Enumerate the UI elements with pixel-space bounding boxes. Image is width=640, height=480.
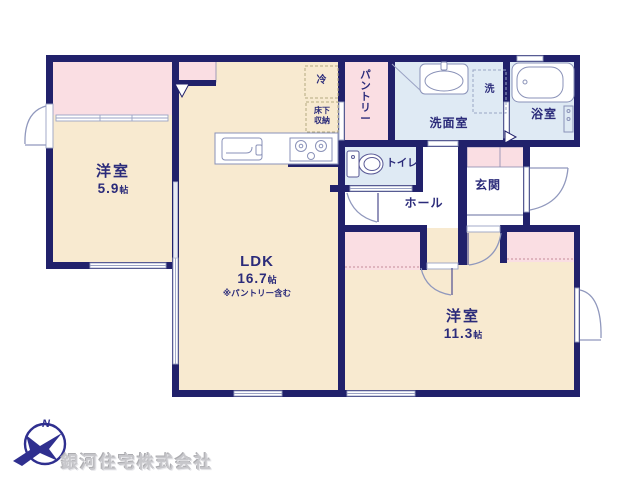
washbasin-faucet-icon [441, 62, 447, 70]
door-entrance-bedroom2-threshold [467, 226, 500, 232]
wall-closet2-top [500, 225, 580, 232]
window-bedroom2-right [575, 288, 579, 342]
underfloor-storage-line1: 床下 [306, 106, 338, 116]
wall-top [46, 55, 580, 62]
company-name: 銀河住宅株式会社 [61, 448, 213, 473]
bedroom1-closet-area [50, 58, 175, 118]
toilet-tank [347, 151, 359, 177]
shoe-cabinet [467, 147, 524, 167]
floorplan-drawing [0, 0, 640, 480]
door-pantry [339, 102, 344, 140]
threshold-hall-bedroom2 [427, 263, 458, 269]
kitchen-counter [215, 133, 338, 164]
company-logo-mark [13, 424, 65, 466]
bedroom1-size: 5.9 [98, 181, 120, 196]
bathroom-label: 浴室 [516, 108, 572, 122]
window-swing-bedroom1 [25, 106, 46, 144]
wall-hall-entrance [458, 147, 467, 265]
washer-label: 洗 [473, 84, 506, 96]
door-washroom [428, 141, 458, 146]
bedroom2-closet2 [505, 228, 577, 262]
bedroom1-size-row: 5.9帖 [70, 180, 156, 198]
wall-closet1-top [338, 225, 423, 232]
wall-pantry-right [388, 55, 395, 140]
wall-closet2-west [500, 225, 507, 263]
wall-toilet-right [416, 147, 423, 192]
bedroom2-size-row: 11.3帖 [420, 325, 506, 343]
compass-north-letter: N [42, 418, 50, 430]
bedroom2-size: 11.3 [444, 326, 474, 341]
hall-label: ホール [396, 197, 452, 211]
window-swing-bedroom2 [580, 290, 601, 338]
ldk-name: LDK [205, 253, 309, 270]
window-bathroom-top [517, 56, 543, 61]
underfloor-storage-label: 床下 収納 [306, 106, 338, 125]
underfloor-storage-line2: 収納 [306, 116, 338, 126]
wall-bathroom-right [574, 55, 580, 147]
ldk-mini-closet [178, 60, 216, 82]
washbasin [420, 62, 468, 94]
bedroom1-name: 洋室 [70, 163, 156, 180]
bedroom1-label: 洋室 5.9帖 [70, 163, 156, 199]
wall-left [46, 55, 53, 269]
pantry-label: パントリー [359, 70, 372, 125]
bedroom2-unit: 帖 [473, 330, 482, 340]
partition-bedroom1-ldk [174, 182, 178, 258]
ldk-label: LDK 16.7帖 ※パントリー含む [205, 253, 309, 298]
ldk-unit: 帖 [268, 275, 277, 285]
faucet-icon [256, 145, 262, 155]
bedroom1-unit: 帖 [119, 185, 128, 195]
front-door-swing [530, 168, 568, 210]
wall-toilet-top [338, 140, 423, 147]
bedroom2-label: 洋室 11.3帖 [420, 308, 506, 344]
ldk-note: ※パントリー含む [205, 289, 309, 299]
toilet-door-swing [347, 193, 377, 222]
toilet-label: トイレ [380, 157, 424, 169]
window-bedroom1-left [46, 104, 53, 148]
bathtub-outer [512, 63, 574, 102]
ldk-size: 16.7 [237, 271, 267, 286]
front-door-opening [524, 167, 529, 212]
bedroom2-closet1 [343, 228, 420, 270]
bedroom2-name: 洋室 [420, 308, 506, 325]
wall-closet1-east [420, 225, 427, 270]
refrigerator-label: 冷 [305, 75, 338, 87]
ldk-size-row: 16.7帖 [205, 270, 309, 288]
entrance-label: 玄関 [464, 179, 512, 193]
washroom-label: 洗面室 [413, 117, 485, 131]
wall-ldk-right [338, 147, 345, 397]
floorplan-canvas: 洋室 5.9帖 LDK 16.7帖 ※パントリー含む 洋室 11.3帖 洗面室 … [0, 0, 640, 480]
